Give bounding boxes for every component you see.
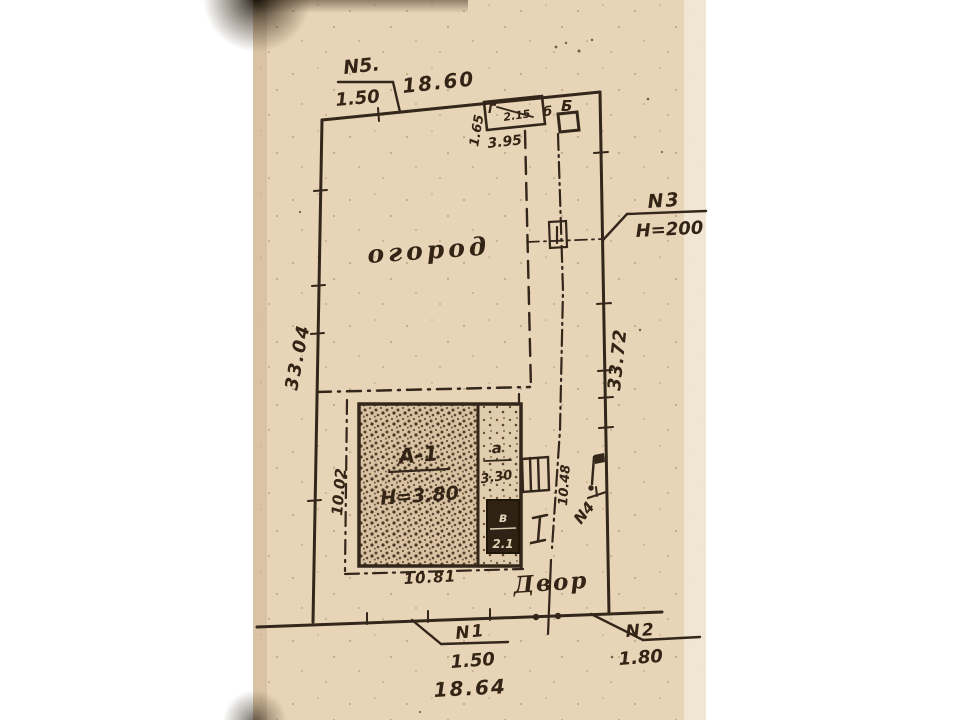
dim-yard-bottom: 10.81 bbox=[403, 567, 456, 588]
callout-n3-value: H=200 bbox=[635, 217, 704, 242]
annex-label: а bbox=[491, 439, 502, 458]
extension-size: 2.1 bbox=[492, 537, 513, 551]
callout-n1-label: N1 bbox=[454, 621, 486, 644]
site-plan-drawing: N5. 1.50 18.60 Г 2.15 1.65 3.95 б Б N3 bbox=[0, 0, 960, 720]
callout-n3-label: N3 bbox=[647, 189, 682, 213]
callout-n5-value: 1.50 bbox=[335, 86, 381, 111]
callout-n1-value: 1.50 bbox=[450, 649, 496, 673]
house: А-1 H=3.80 а 3.30 в 2.1 bbox=[359, 404, 549, 566]
shed-label: Г bbox=[488, 102, 497, 116]
scanned-site-plan-page: { "plan": { "callouts": { "n5": { "label… bbox=[0, 0, 960, 720]
area-yard-label: Двор bbox=[512, 567, 590, 599]
extension-label: в bbox=[499, 511, 507, 526]
house-label: А-1 bbox=[396, 441, 440, 469]
dim-walkway: 10.48 bbox=[556, 464, 574, 506]
house-extension: в 2.1 bbox=[487, 500, 519, 553]
callout-n2-label: N2 bbox=[625, 620, 656, 642]
dim-street-front: 18.64 bbox=[433, 674, 507, 702]
callout-n5-label: N5. bbox=[342, 53, 380, 79]
outbuilding-small-label: б bbox=[543, 105, 552, 120]
callout-n2-value: 1.80 bbox=[618, 646, 664, 670]
outbuilding-label: Б bbox=[561, 97, 572, 115]
